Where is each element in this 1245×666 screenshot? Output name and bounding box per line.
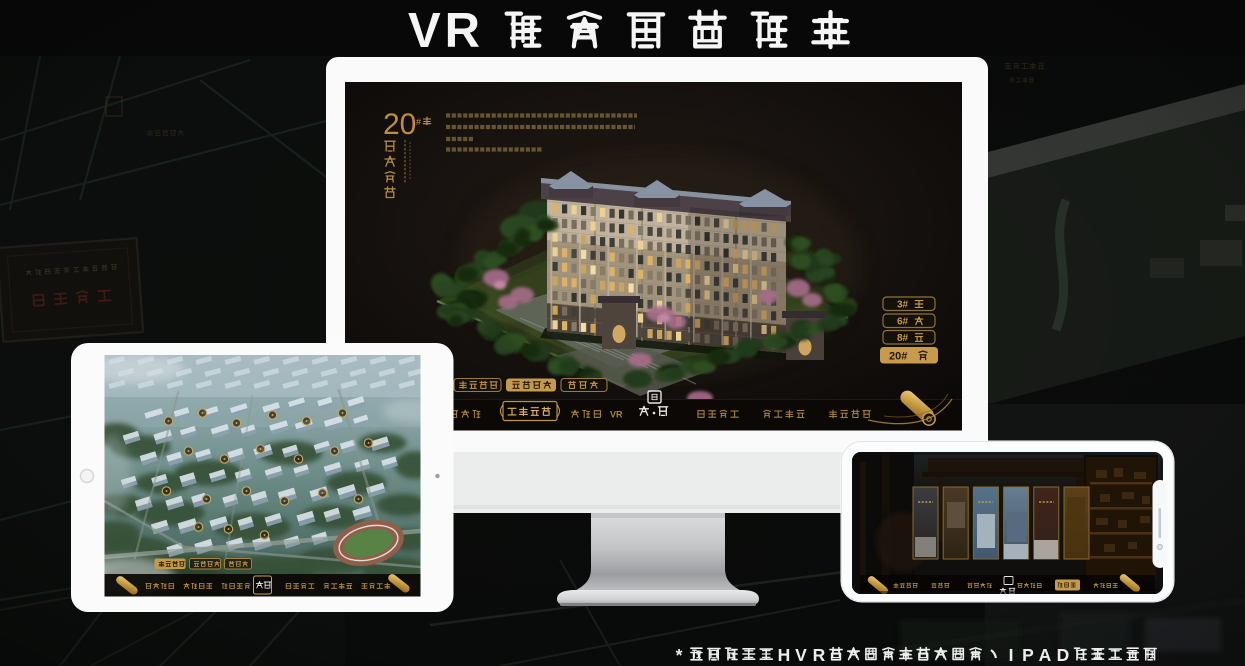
svg-text:6#: 6#	[897, 317, 909, 328]
svg-text:D: D	[1057, 645, 1070, 665]
svg-text:*: *	[676, 645, 683, 665]
svg-text:20: 20	[383, 108, 416, 141]
svg-text:VR: VR	[610, 410, 623, 420]
svg-text:20#: 20#	[889, 351, 907, 363]
svg-text:3#: 3#	[897, 300, 909, 311]
svg-text:H: H	[778, 645, 791, 665]
svg-text:I: I	[1009, 645, 1014, 665]
svg-text:R: R	[813, 645, 826, 665]
svg-text:A: A	[1039, 645, 1052, 665]
svg-text:#: #	[416, 117, 421, 127]
svg-text:VR: VR	[408, 4, 484, 58]
svg-text:V: V	[795, 645, 807, 665]
svg-text:8#: 8#	[897, 333, 909, 344]
svg-text:P: P	[1022, 645, 1034, 665]
